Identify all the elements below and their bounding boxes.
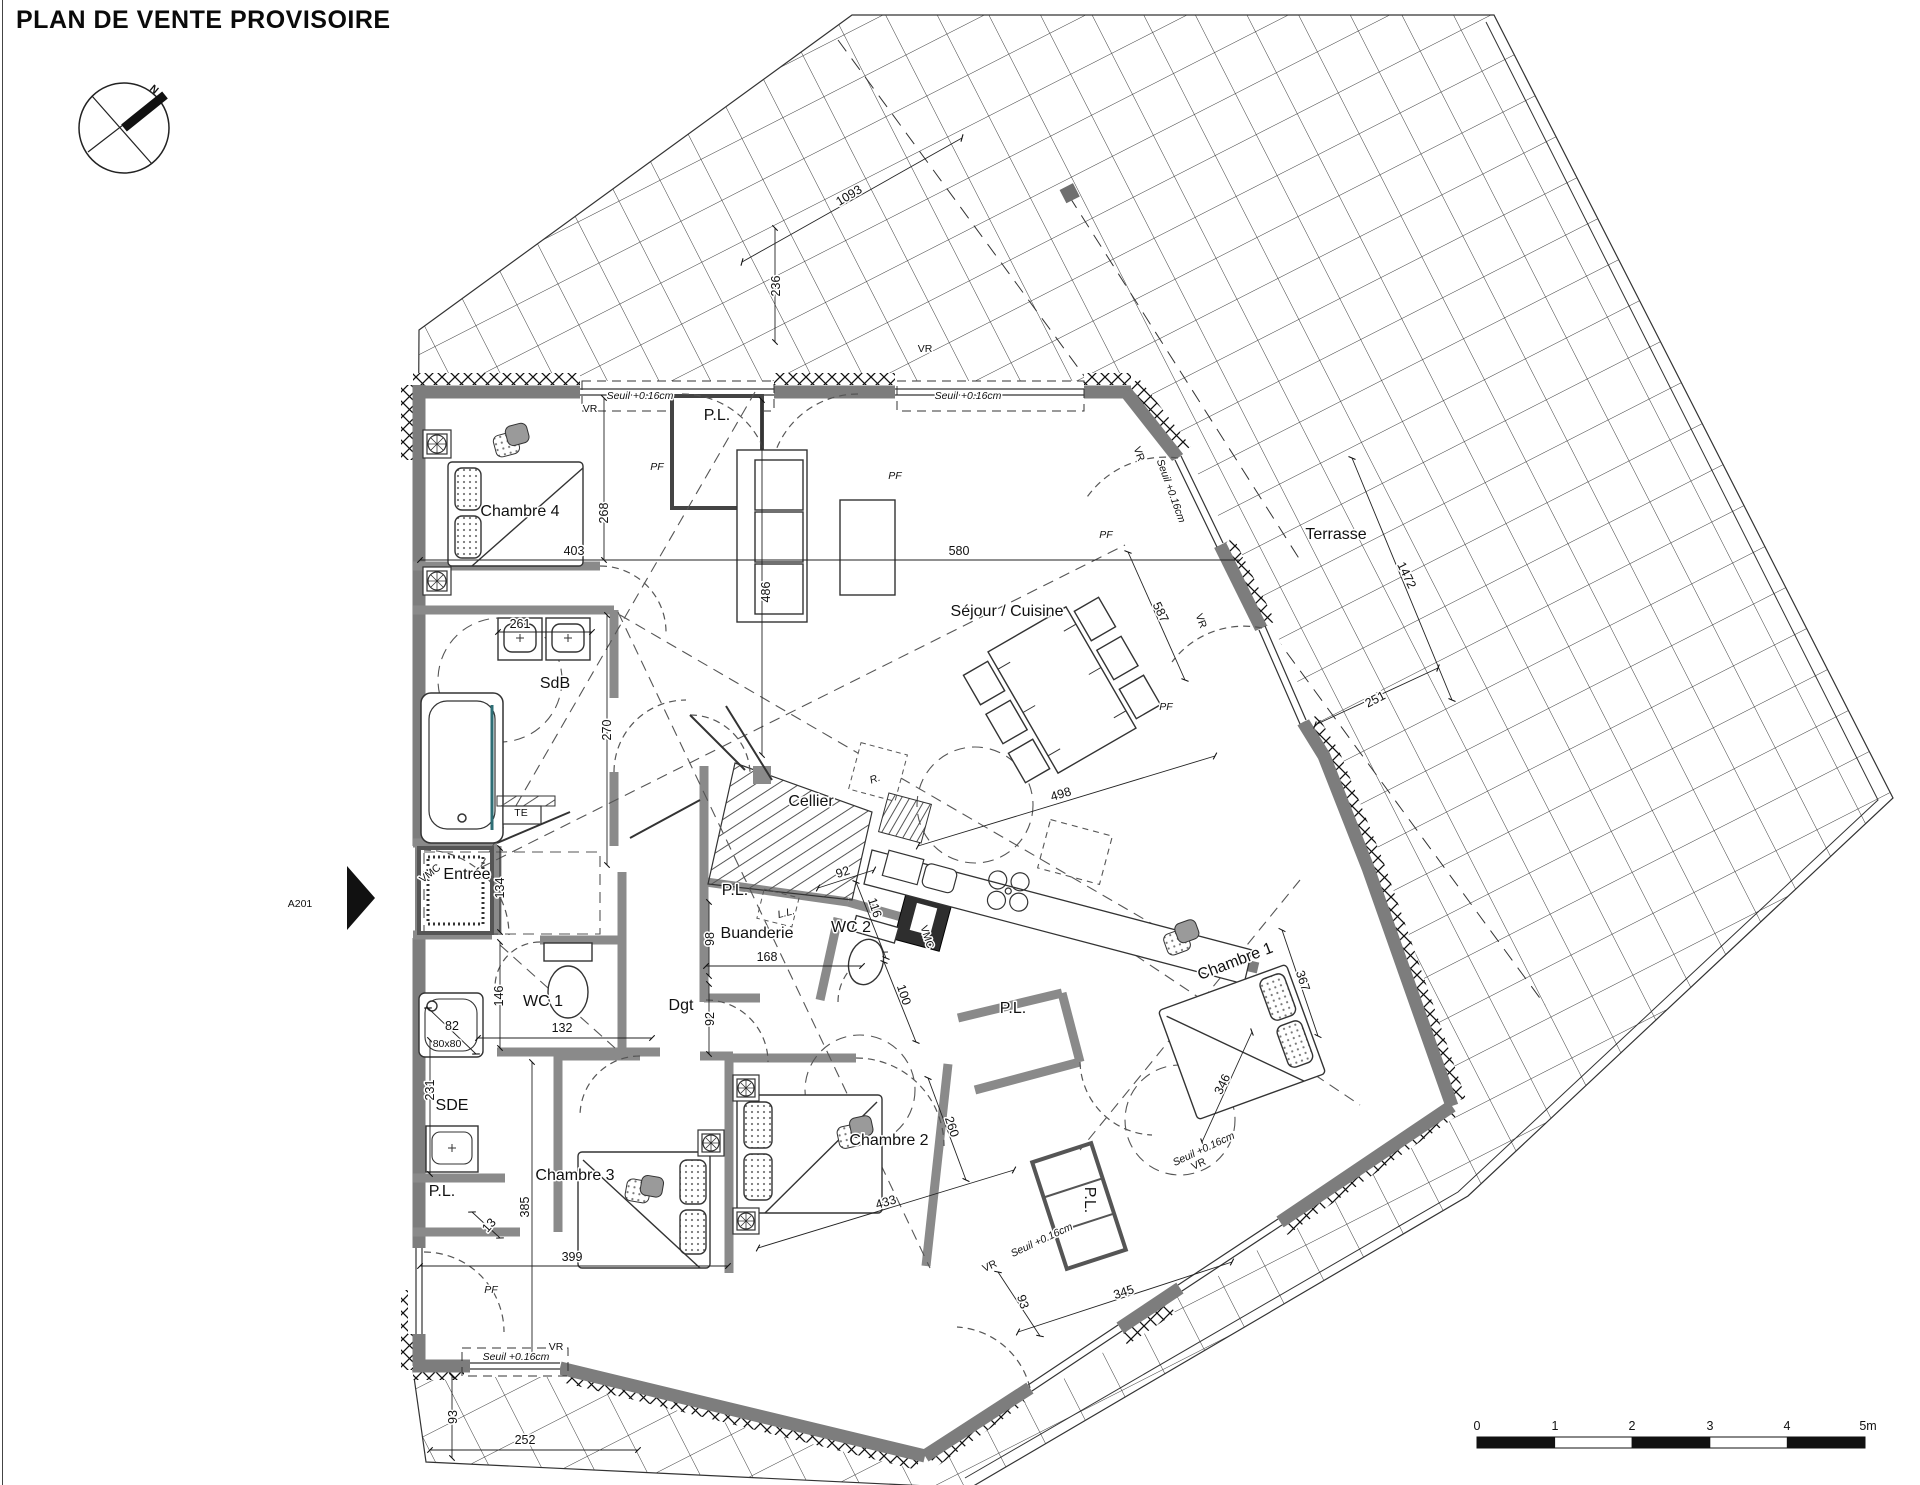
scale-bar — [1477, 1437, 1865, 1448]
room-cellier: Cellier — [788, 793, 834, 810]
dim-580: 580 — [949, 544, 970, 558]
room-dgt: Dgt — [669, 997, 694, 1014]
dim-403: 403 — [564, 544, 585, 558]
plan-title: PLAN DE VENTE PROVISOIRE — [16, 6, 391, 35]
scale-4: 4 — [1784, 1419, 1791, 1433]
dim-231: 231 — [423, 1080, 437, 1101]
floor-plan-canvas: Chambre 4SdBEntréeWC 1SDEP.L.Chambre 3Ch… — [0, 0, 1920, 1485]
dim-82: 82 — [445, 1019, 459, 1033]
dim-270: 270 — [600, 720, 614, 741]
room-chambre4: Chambre 4 — [480, 503, 559, 520]
scale-0: 0 — [1474, 1419, 1481, 1433]
dim-252: 252 — [515, 1433, 536, 1447]
unit-label: A201 — [288, 898, 313, 910]
vr-top-mid: VR — [918, 343, 933, 355]
floor-plan-page: PLAN DE VENTE PROVISOIRE — [0, 0, 1920, 1485]
seuil-top-left: Seuil +0.16cm — [607, 390, 674, 402]
room-buanderie: Buanderie — [721, 925, 794, 942]
vmc-duct-sdb — [419, 848, 492, 933]
room-pl-cellier: P.L. — [722, 882, 748, 899]
room-pl-sde: P.L. — [429, 1183, 455, 1200]
vr-top-left: VR — [583, 403, 598, 415]
bathtub — [421, 693, 503, 843]
dim-168: 168 — [757, 950, 778, 964]
pf-chambre4: PF — [650, 461, 664, 473]
dim-236: 236 — [769, 276, 783, 297]
room-sdb: SdB — [540, 675, 570, 692]
dim-399: 399 — [562, 1250, 583, 1264]
room-sejour: Séjour / Cuisine — [951, 603, 1064, 620]
dim-268: 268 — [597, 503, 611, 524]
dim-92-dgt: 92 — [703, 1012, 717, 1026]
dim-132: 132 — [552, 1021, 573, 1035]
pf-chambre3: PF — [484, 1284, 498, 1296]
room-pl-ch1: P.L. — [1000, 1000, 1026, 1017]
room-sde: SDE — [436, 1097, 469, 1114]
scale-3: 3 — [1707, 1419, 1714, 1433]
dim-134: 134 — [493, 878, 507, 899]
shower-size: 80x80 — [433, 1038, 462, 1050]
dim-385: 385 — [518, 1197, 532, 1218]
seuil-bottom-left: Seuil +0.16cm — [483, 1351, 550, 1363]
room-pl-shaft: P.L. — [1081, 1187, 1098, 1213]
scale-5m: 5m — [1859, 1419, 1876, 1433]
seuil-top-mid: Seuil +0.16cm — [935, 390, 1002, 402]
pf-chambre1: PF — [1159, 701, 1173, 713]
vr-bottom-left: VR — [549, 1341, 564, 1353]
page-border-line — [2, 0, 3, 1485]
te-label: TE — [514, 807, 527, 819]
scale-1: 1 — [1552, 1419, 1559, 1433]
dim-98: 98 — [703, 932, 717, 946]
dim-93-left: 93 — [446, 1410, 460, 1424]
unit-arrow — [347, 866, 375, 930]
room-entree: Entrée — [443, 866, 490, 883]
room-wc2: WC 2 — [831, 919, 871, 936]
scale-2: 2 — [1629, 1419, 1636, 1433]
dim-486: 486 — [759, 582, 773, 603]
dim-146: 146 — [492, 986, 506, 1007]
pf-sejour-left: PF — [888, 470, 902, 482]
room-terrasse: Terrasse — [1305, 526, 1366, 543]
room-wc1: WC 1 — [523, 993, 563, 1010]
dim-261: 261 — [510, 617, 531, 631]
room-chambre3: Chambre 3 — [535, 1167, 614, 1184]
north-compass — [79, 83, 169, 173]
washbasin-sde — [426, 1126, 478, 1172]
pf-sejour-right: PF — [1099, 529, 1113, 541]
room-chambre2: Chambre 2 — [849, 1132, 928, 1149]
room-pl-top: P.L. — [704, 407, 730, 424]
bed-chambre2 — [737, 1095, 882, 1213]
